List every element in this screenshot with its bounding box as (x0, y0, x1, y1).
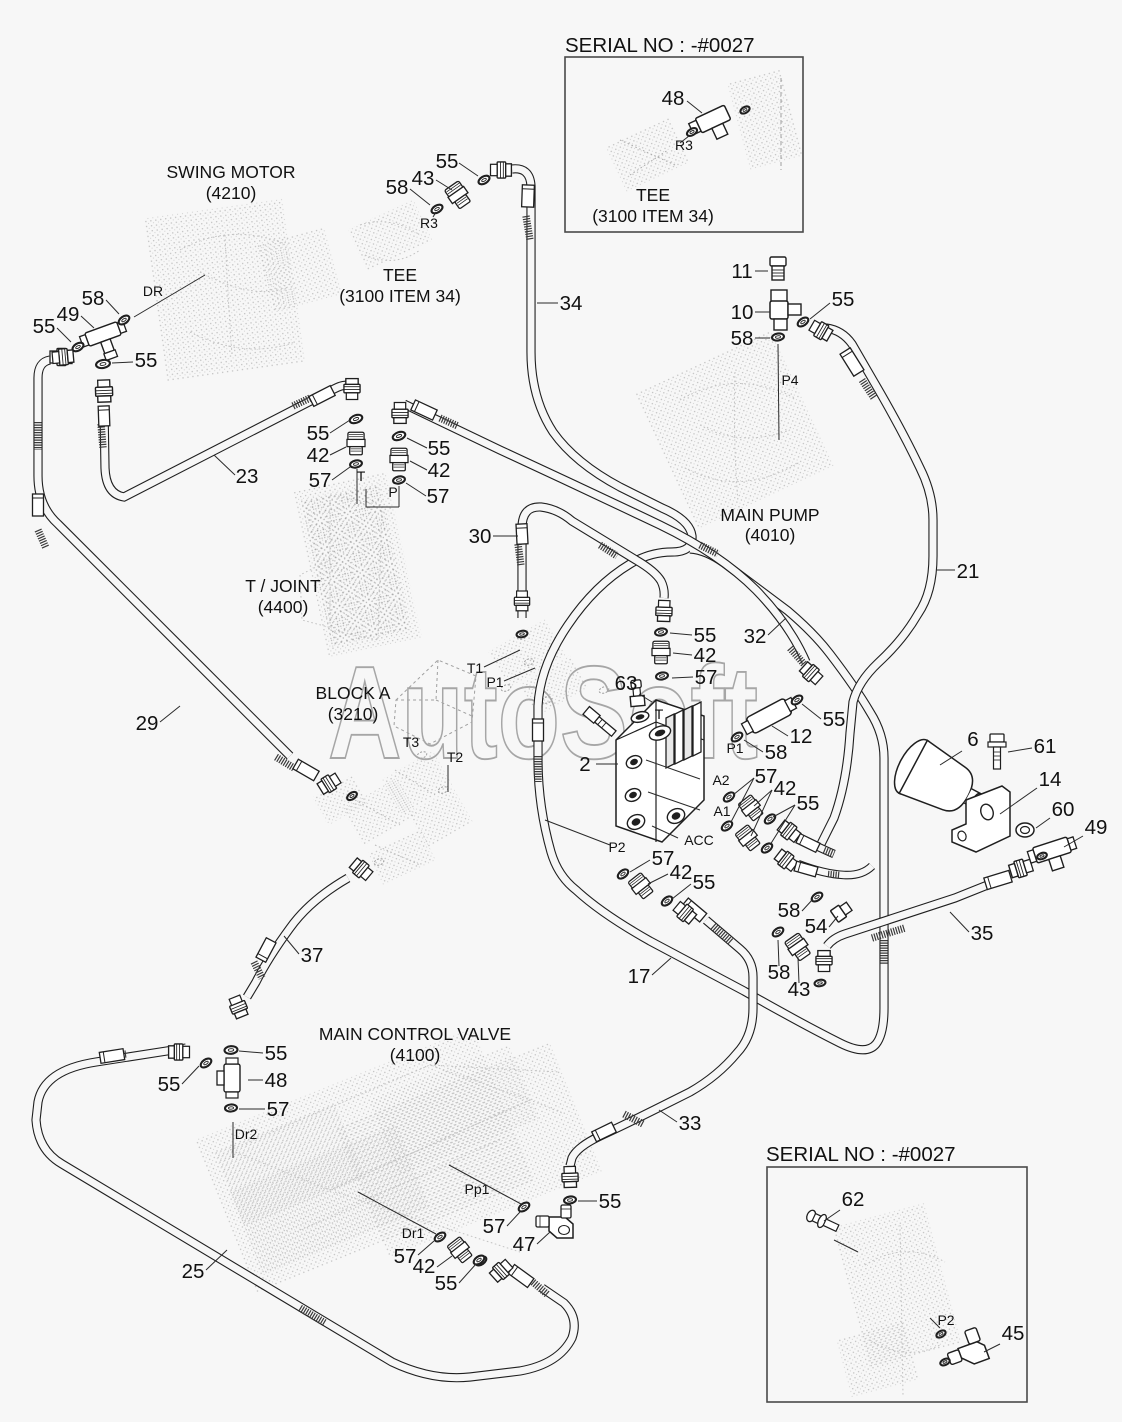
svg-text:T3: T3 (403, 734, 420, 750)
svg-text:58: 58 (386, 176, 409, 199)
svg-text:48: 48 (265, 1069, 288, 1092)
svg-text:37: 37 (301, 944, 324, 967)
svg-text:6: 6 (967, 728, 978, 751)
svg-text:(3100 ITEM 34): (3100 ITEM 34) (339, 286, 461, 306)
svg-text:33: 33 (679, 1112, 702, 1135)
svg-text:11: 11 (731, 260, 752, 283)
svg-text:MAIN PUMP: MAIN PUMP (720, 505, 819, 525)
svg-text:R3: R3 (420, 215, 438, 231)
svg-text:(3210): (3210) (328, 704, 379, 724)
svg-text:TEE: TEE (636, 185, 670, 205)
svg-text:TEE: TEE (383, 265, 417, 285)
svg-text:34: 34 (560, 292, 583, 315)
svg-text:MAIN CONTROL VALVE: MAIN CONTROL VALVE (319, 1024, 511, 1044)
svg-text:(4400): (4400) (258, 597, 309, 617)
svg-text:62: 62 (842, 1188, 865, 1211)
svg-text:57: 57 (483, 1215, 506, 1238)
svg-text:49: 49 (57, 303, 80, 326)
svg-text:21: 21 (957, 560, 980, 583)
svg-text:SERIAL NO : -#0027: SERIAL NO : -#0027 (565, 34, 755, 57)
svg-text:58: 58 (778, 899, 801, 922)
svg-text:55: 55 (436, 150, 459, 173)
svg-text:2: 2 (579, 753, 590, 776)
svg-text:12: 12 (790, 725, 813, 748)
svg-text:42: 42 (428, 459, 451, 482)
svg-text:55: 55 (428, 437, 451, 460)
svg-text:55: 55 (823, 708, 846, 731)
svg-text:55: 55 (797, 792, 820, 815)
svg-text:DR: DR (143, 283, 163, 299)
svg-text:48: 48 (662, 87, 685, 110)
svg-text:55: 55 (693, 871, 716, 894)
svg-text:55: 55 (435, 1272, 458, 1295)
svg-text:57: 57 (267, 1098, 290, 1121)
svg-text:29: 29 (136, 712, 159, 735)
svg-text:P4: P4 (781, 372, 798, 388)
svg-text:55: 55 (307, 422, 330, 445)
svg-text:T: T (357, 468, 366, 484)
svg-text:42: 42 (670, 861, 693, 884)
svg-text:58: 58 (731, 327, 754, 350)
svg-text:57: 57 (427, 485, 450, 508)
svg-text:42: 42 (774, 777, 797, 800)
svg-text:T / JOINT: T / JOINT (245, 576, 321, 596)
svg-text:10: 10 (731, 301, 754, 324)
svg-text:30: 30 (469, 525, 492, 548)
svg-text:Dr2: Dr2 (235, 1126, 258, 1142)
svg-text:55: 55 (33, 315, 56, 338)
svg-text:P: P (388, 484, 397, 500)
svg-text:47: 47 (513, 1233, 536, 1256)
svg-text:SWING MOTOR: SWING MOTOR (167, 162, 296, 182)
svg-text:(3100 ITEM 34): (3100 ITEM 34) (592, 206, 714, 226)
svg-text:P1: P1 (726, 740, 743, 756)
svg-text:55: 55 (158, 1073, 181, 1096)
svg-text:P1: P1 (486, 674, 503, 690)
svg-text:57: 57 (695, 666, 718, 689)
svg-text:25: 25 (182, 1260, 205, 1283)
svg-text:57: 57 (309, 469, 332, 492)
svg-text:42: 42 (694, 644, 717, 667)
svg-text:43: 43 (412, 167, 435, 190)
svg-text:T1: T1 (467, 660, 484, 676)
svg-text:(4210): (4210) (206, 183, 257, 203)
svg-text:61: 61 (1034, 735, 1057, 758)
svg-text:P2: P2 (937, 1312, 954, 1328)
svg-text:23: 23 (236, 465, 259, 488)
svg-text:BLOCK A: BLOCK A (316, 683, 391, 703)
svg-text:32: 32 (744, 625, 767, 648)
svg-text:P2: P2 (608, 839, 625, 855)
svg-text:14: 14 (1039, 768, 1062, 791)
svg-text:55: 55 (135, 349, 158, 372)
svg-text:Pp1: Pp1 (465, 1181, 490, 1197)
svg-text:(4010): (4010) (745, 525, 796, 545)
svg-text:Dr1: Dr1 (402, 1225, 425, 1241)
svg-text:T2: T2 (447, 749, 464, 765)
svg-text:17: 17 (628, 965, 651, 988)
svg-text:42: 42 (307, 444, 330, 467)
svg-text:A1: A1 (713, 803, 730, 819)
svg-text:55: 55 (265, 1042, 288, 1065)
svg-text:55: 55 (832, 288, 855, 311)
svg-text:35: 35 (971, 922, 994, 945)
svg-text:(4100): (4100) (390, 1045, 441, 1065)
svg-text:42: 42 (413, 1255, 436, 1278)
svg-text:63: 63 (615, 672, 638, 695)
svg-text:55: 55 (599, 1190, 622, 1213)
svg-text:58: 58 (82, 287, 105, 310)
svg-text:45: 45 (1002, 1322, 1025, 1345)
svg-text:58: 58 (765, 741, 788, 764)
svg-text:49: 49 (1085, 816, 1108, 839)
svg-text:ACC: ACC (684, 832, 714, 848)
svg-text:T: T (655, 706, 664, 722)
svg-text:54: 54 (805, 915, 828, 938)
svg-text:A2: A2 (712, 772, 729, 788)
svg-text:60: 60 (1052, 798, 1075, 821)
svg-text:SERIAL NO : -#0027: SERIAL NO : -#0027 (766, 1143, 956, 1166)
